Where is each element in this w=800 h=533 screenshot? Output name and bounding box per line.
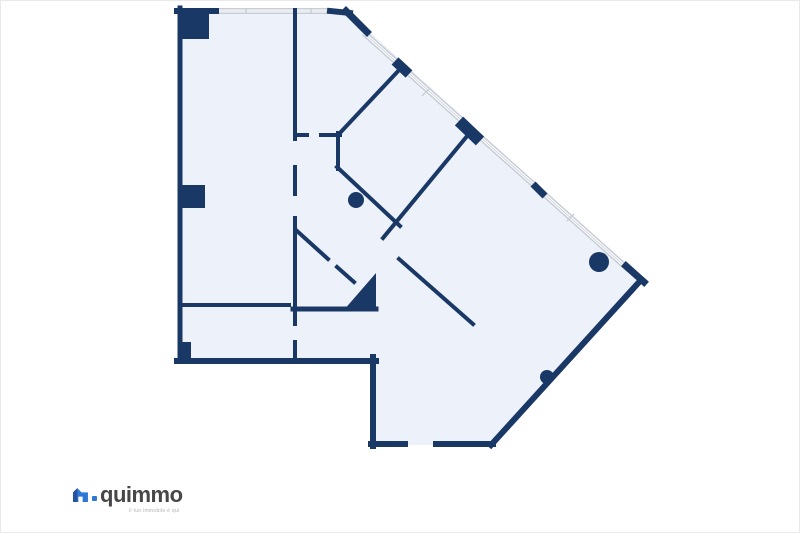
column-block bbox=[180, 342, 191, 359]
column-block bbox=[181, 185, 205, 208]
brand-tagline: il tuo immobile è qui bbox=[129, 508, 180, 514]
floorplan-image: quimmo il tuo immobile è qui bbox=[0, 0, 800, 533]
round-column bbox=[589, 252, 609, 272]
column-block bbox=[181, 10, 209, 39]
round-column bbox=[348, 192, 364, 208]
quimmo-logo-icon bbox=[72, 486, 89, 503]
logo-dot bbox=[92, 496, 97, 501]
round-column bbox=[540, 370, 554, 384]
brand-name: quimmo bbox=[100, 484, 183, 506]
quimmo-logo: quimmo bbox=[72, 484, 183, 506]
floorplan-drawing bbox=[0, 0, 800, 533]
